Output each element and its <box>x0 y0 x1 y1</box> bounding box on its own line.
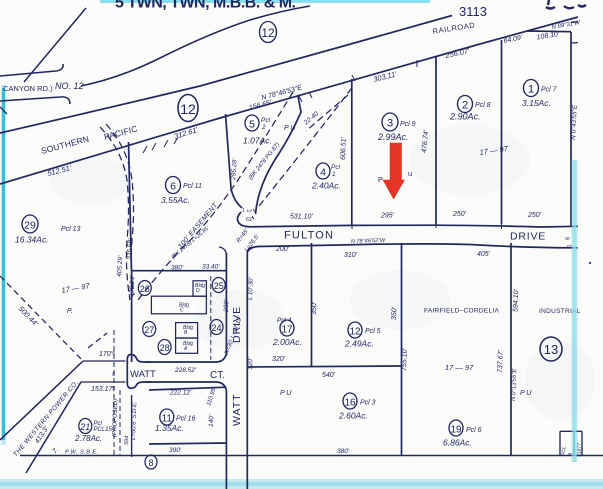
svg-text:350': 350' <box>311 301 318 315</box>
svg-text:N 0°13'55"E: N 0°13'55"E <box>511 368 518 402</box>
svg-text:P: P <box>378 175 383 184</box>
svg-text:2.99Ac.: 2.99Ac. <box>377 132 409 142</box>
svg-text:N 78°46'52"W: N 78°46'52"W <box>351 238 386 245</box>
svg-text:3113: 3113 <box>459 4 487 19</box>
svg-text:Pcl 8: Pcl 8 <box>475 102 491 109</box>
svg-text:3: 3 <box>387 118 393 130</box>
svg-text:2.49Ac.: 2.49Ac. <box>344 339 374 349</box>
svg-text:1: 1 <box>528 84 534 96</box>
svg-text:17 — 97: 17 — 97 <box>445 363 474 372</box>
svg-text:6.86Ac.: 6.86Ac. <box>443 438 472 448</box>
svg-text:24: 24 <box>211 323 221 333</box>
svg-text:PCL15: PCL15 <box>94 427 113 433</box>
svg-text:531.10': 531.10' <box>290 214 313 221</box>
svg-text:CANYON RD.): CANYON RD.) <box>3 84 53 93</box>
svg-text:P.: P. <box>67 308 73 315</box>
svg-text:380': 380' <box>171 265 184 272</box>
svg-text:12: 12 <box>261 26 275 40</box>
svg-text:13: 13 <box>544 342 558 357</box>
svg-text:6: 6 <box>170 181 176 193</box>
svg-text:Pcl: Pcl <box>331 164 341 171</box>
svg-text:2.40Ac.: 2.40Ac. <box>311 181 341 191</box>
svg-text:Pcl 16: Pcl 16 <box>176 416 196 423</box>
svg-text:250': 250' <box>527 212 542 219</box>
svg-text:140': 140' <box>208 414 215 427</box>
svg-text:16.34Ac.: 16.34Ac. <box>15 235 49 245</box>
svg-text:63': 63' <box>246 217 254 223</box>
svg-text:L 10'-30': L 10'-30' <box>248 276 255 300</box>
svg-text:737.67': 737.67' <box>497 349 505 373</box>
svg-text:NO. 12: NO. 12 <box>55 81 84 91</box>
svg-text:27: 27 <box>144 325 154 335</box>
svg-text:2.00Ac.: 2.00Ac. <box>272 337 302 347</box>
svg-text:12: 12 <box>180 101 196 117</box>
svg-text:FAIRFIELD–CORDELIA: FAIRFIELD–CORDELIA <box>424 308 499 315</box>
svg-text:26: 26 <box>140 284 150 294</box>
svg-text:19: 19 <box>450 425 462 436</box>
svg-text:WATT: WATT <box>231 393 243 426</box>
svg-text:Pcl 5: Pcl 5 <box>365 328 381 335</box>
svg-text:594.10': 594.10' <box>513 288 521 312</box>
svg-text:P.W. S.B.E.: P.W. S.B.E. <box>65 450 99 456</box>
svg-text:310': 310' <box>344 252 358 259</box>
svg-text:33.40': 33.40' <box>202 264 220 271</box>
svg-text:5: 5 <box>249 119 255 131</box>
svg-text:200': 200' <box>275 246 290 253</box>
svg-text:Pcl 11: Pcl 11 <box>183 183 202 190</box>
svg-text:1.07Ac.: 1.07Ac. <box>243 136 272 146</box>
svg-text:u: u <box>408 169 412 178</box>
svg-text:Pcl 4: Pcl 4 <box>277 317 292 324</box>
svg-text:Pcl: Pcl <box>261 117 271 124</box>
svg-text:1.35Ac.: 1.35Ac. <box>155 423 184 433</box>
svg-text:2.90Ac.: 2.90Ac. <box>449 112 481 122</box>
svg-text:D: D <box>196 288 200 294</box>
svg-text:17: 17 <box>281 325 293 336</box>
svg-text:606.51': 606.51' <box>340 136 348 160</box>
svg-text:P U: P U <box>284 125 296 132</box>
svg-text:250': 250' <box>452 211 467 218</box>
svg-text:3.55Ac.: 3.55Ac. <box>161 195 190 205</box>
svg-text:C: C <box>180 308 184 314</box>
svg-text:380': 380' <box>337 448 350 455</box>
svg-text:DRIVE: DRIVE <box>510 231 546 243</box>
svg-text:Pcl 9: Pcl 9 <box>400 121 416 128</box>
svg-text:8: 8 <box>148 458 153 468</box>
svg-text:320': 320' <box>272 356 286 363</box>
svg-text:WATT: WATT <box>130 369 156 380</box>
svg-text:21: 21 <box>79 422 90 432</box>
svg-text:Pcl 7: Pcl 7 <box>541 87 558 94</box>
svg-text:222.12': 222.12' <box>169 390 192 397</box>
svg-text:Pcl 3: Pcl 3 <box>360 400 376 407</box>
svg-text:CT.: CT. <box>210 370 225 381</box>
svg-text:230': 230' <box>223 299 230 313</box>
svg-text:25: 25 <box>214 281 224 291</box>
svg-text:350': 350' <box>391 306 398 320</box>
svg-text:540': 540' <box>322 372 336 379</box>
svg-text:P U: P U <box>280 390 292 397</box>
svg-text:1: 1 <box>332 171 336 178</box>
svg-text:2: 2 <box>462 100 468 112</box>
svg-text:A: A <box>183 346 188 352</box>
svg-text:755.10': 755.10' <box>401 347 409 371</box>
svg-text:16: 16 <box>344 398 356 409</box>
svg-text:5 TWN, TWN, M.B.B. & M.: 5 TWN, TWN, M.B.B. & M. <box>115 0 296 12</box>
svg-text:2.60Ac.: 2.60Ac. <box>338 411 368 421</box>
svg-text:4: 4 <box>320 167 326 179</box>
svg-text:228.52': 228.52' <box>174 367 197 374</box>
svg-text:295': 295' <box>380 213 395 220</box>
svg-text:29: 29 <box>24 220 36 232</box>
svg-text:Pcl 6: Pcl 6 <box>466 427 482 434</box>
svg-text:12: 12 <box>349 327 361 338</box>
svg-text:170': 170' <box>99 351 113 358</box>
svg-text:FULTON: FULTON <box>284 230 334 242</box>
svg-text:3.15Ac.: 3.15Ac. <box>522 98 551 108</box>
svg-text:320': 320' <box>247 357 254 370</box>
svg-text:Pcl 13: Pcl 13 <box>61 226 81 233</box>
svg-text:28: 28 <box>160 343 170 353</box>
svg-text:405': 405' <box>477 251 491 258</box>
svg-text:P U: P U <box>520 390 532 397</box>
svg-text:390': 390' <box>169 447 182 454</box>
svg-text:594': 594' <box>124 434 130 445</box>
svg-text:PCL: PCL <box>561 446 567 456</box>
svg-text:2: 2 <box>261 124 266 131</box>
svg-text:153.17': 153.17' <box>91 386 114 393</box>
svg-text:2.78Ac.: 2.78Ac. <box>74 434 102 443</box>
